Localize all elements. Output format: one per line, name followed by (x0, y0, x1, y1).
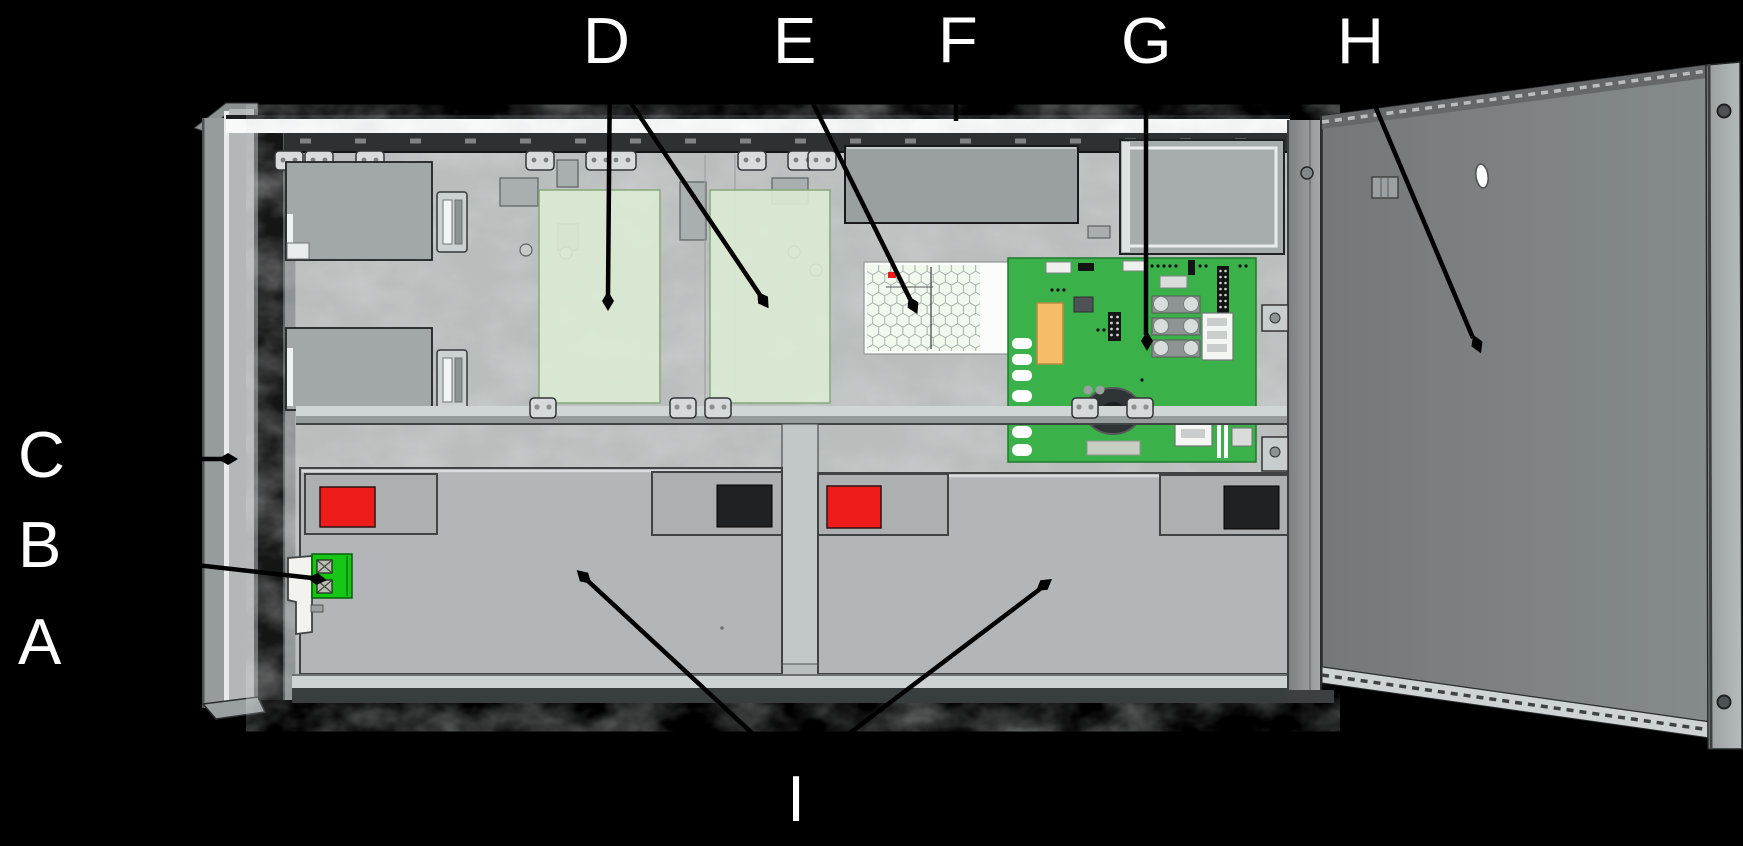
door-gap-shadow (258, 133, 284, 700)
main-circuit-board (1008, 258, 1256, 462)
left-door-edge (194, 103, 265, 719)
battery-1-negative-marker (717, 485, 772, 527)
door-panel (1322, 65, 1710, 722)
callout-b-label: B (18, 508, 61, 581)
door-screw-top (1718, 105, 1731, 118)
right-door (1322, 62, 1742, 749)
callout-i-label: I (787, 762, 805, 835)
panel-diagram: D E F G H C B A I (0, 0, 1743, 841)
pcb-output-connector (1202, 313, 1233, 360)
module-slot-bracket-lower (437, 350, 467, 410)
speaker-grille (864, 262, 1012, 354)
callout-a-label: A (18, 605, 62, 678)
honeycomb-pattern (867, 265, 980, 351)
battery-1-positive-marker (320, 487, 375, 527)
pcb-chip (1074, 297, 1093, 312)
lower-left-box (286, 328, 432, 410)
battery-2-negative-marker (1224, 486, 1279, 529)
left-door-inner-face (229, 109, 258, 703)
pcb-orange-component (1037, 303, 1063, 364)
cabinet-bottom-lip (292, 674, 1290, 703)
option-card-area-2 (710, 190, 830, 403)
enclosure-illustration: D E F G H C B A I (0, 0, 1743, 841)
pcb-capacitors (1152, 296, 1200, 357)
callout-f-label: F (938, 3, 978, 76)
callout-h-label: H (1337, 4, 1384, 77)
callout-c-label: C (18, 418, 65, 491)
battery-2 (818, 473, 1297, 674)
left-door-bright-edge (224, 111, 229, 707)
option-card-area-1 (539, 190, 660, 403)
transformer-cover (845, 146, 1078, 223)
battery-divider (782, 424, 818, 674)
battery-1 (300, 468, 782, 674)
hinge-screw (1301, 167, 1313, 179)
door-screw-bottom (1718, 696, 1731, 709)
callout-d-label: D (583, 4, 630, 77)
callout-g-label: G (1121, 4, 1172, 77)
left-door-outer-face (203, 118, 224, 708)
battery-2-positive-marker (827, 486, 881, 528)
pcb-socket (1108, 312, 1121, 341)
callout-e-label: E (773, 4, 816, 77)
cabinet-top-white-strip (226, 119, 1290, 133)
cabinet-right-foot (1288, 690, 1334, 703)
pcb-header (1217, 266, 1229, 314)
pcb-label (1087, 441, 1140, 455)
module-slot-bracket-upper (437, 192, 467, 252)
door-clip (1372, 177, 1398, 198)
